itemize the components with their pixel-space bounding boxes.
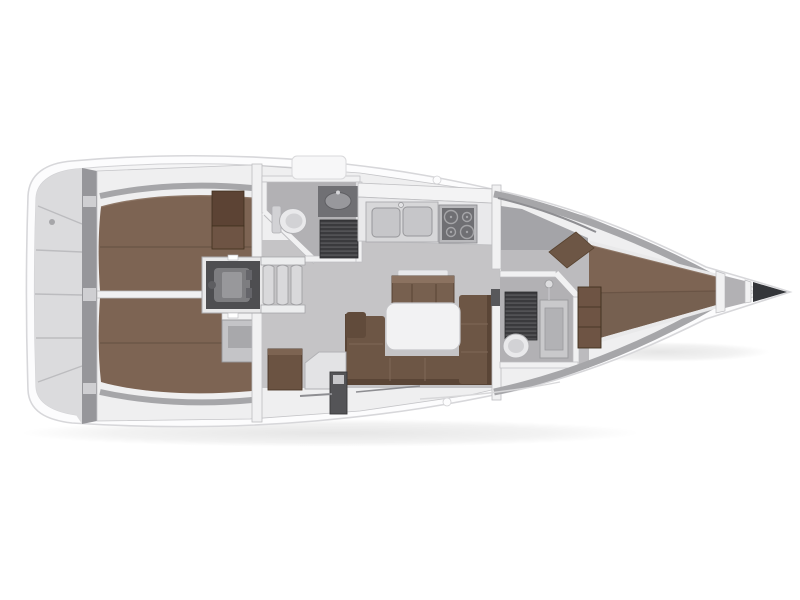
- toilet-seat: [508, 339, 524, 353]
- step-tread: [277, 265, 288, 305]
- steps-cap-top: [261, 257, 305, 265]
- bow-bulkhead-2: [745, 280, 751, 303]
- vanity-mirror: [545, 308, 563, 350]
- sink-basin-right: [403, 207, 432, 236]
- chart-table: [268, 349, 302, 390]
- steps-cap-bottom: [261, 305, 305, 313]
- settee-armrest: [346, 312, 366, 338]
- wardrobe: [578, 287, 601, 348]
- sink-basin-left: [372, 208, 400, 237]
- sideboard-top: [392, 276, 454, 283]
- toilet-seat: [286, 214, 303, 229]
- fwd-door-jamb: [491, 289, 500, 306]
- stern-panel-area: [35, 168, 83, 424]
- shower-grate: [505, 292, 537, 340]
- salon-table: [386, 303, 460, 350]
- chart-table-top: [268, 349, 302, 355]
- bow-bulkhead-1: [716, 271, 725, 313]
- shower-head: [545, 280, 553, 288]
- hatch-hinge-bottom: [228, 313, 238, 318]
- head-left-wall: [262, 182, 267, 213]
- head-top-wall: [500, 271, 556, 277]
- engine-part: [246, 270, 252, 280]
- galley-faucet: [399, 203, 404, 208]
- forward-head: [500, 271, 579, 368]
- engine-block: [222, 272, 242, 298]
- washbasin: [325, 193, 351, 210]
- cockpit-locker-cap: [333, 375, 344, 384]
- engine-compartment: [202, 255, 264, 318]
- head-bottom-wall: [500, 362, 578, 368]
- hatch-hinge-top: [228, 255, 238, 260]
- fwd-bulkhead-lower: [492, 298, 501, 400]
- engine-part: [246, 288, 252, 298]
- deck-hatch: [292, 156, 346, 179]
- deck-notch-top: [433, 176, 441, 184]
- wardrobe-lower: [212, 226, 244, 249]
- step-tread: [263, 265, 274, 305]
- faucet: [336, 191, 340, 195]
- engine-shaft: [208, 281, 216, 289]
- deck-notch-bottom: [443, 398, 451, 406]
- yacht-floorplan-image: Top-down interior floor plan of a sailin…: [0, 0, 800, 600]
- wardrobe: [212, 191, 244, 226]
- aft-cabin-wall-lower: [252, 310, 262, 422]
- yacht-floorplan: Top-down interior floor plan of a sailin…: [0, 0, 800, 600]
- galley: [358, 183, 492, 245]
- companionway-steps: [261, 257, 305, 313]
- stern-lockers: [35, 168, 98, 424]
- bow-locker: [725, 276, 745, 308]
- step-tread: [291, 265, 302, 305]
- aft-cabin-wall-upper: [252, 164, 262, 262]
- deck-fitting: [49, 219, 55, 225]
- shower-grate: [320, 220, 358, 258]
